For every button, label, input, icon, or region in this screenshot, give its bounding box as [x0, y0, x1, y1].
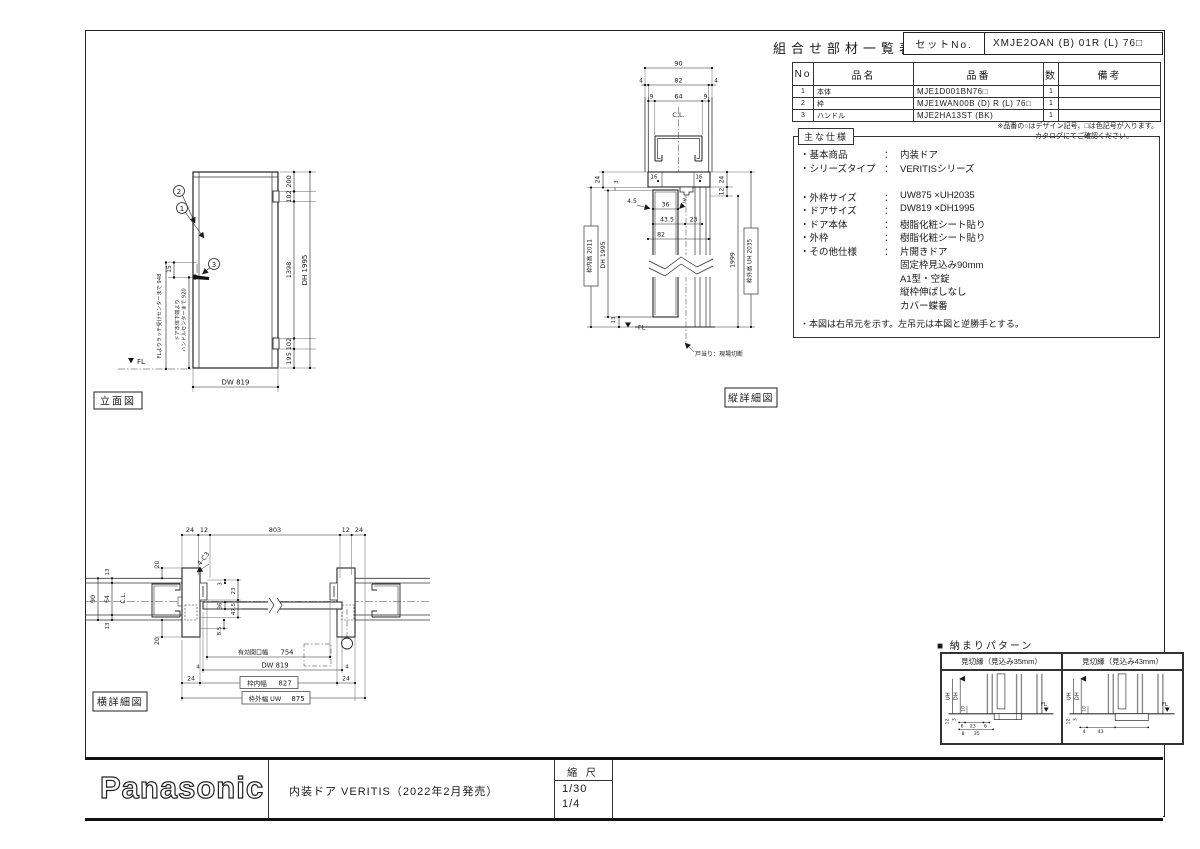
spec-sep: ： [884, 190, 900, 204]
spec-sep [884, 271, 900, 285]
fl-marker-icon [128, 358, 134, 363]
dh-label: DH [953, 692, 959, 700]
pattern-35-header: 見切縁（見込み35mm） [941, 653, 1062, 670]
dim-64: 64 [674, 93, 682, 101]
callout-1: 1 [180, 205, 184, 213]
dim-24-left: 24 [596, 176, 602, 184]
spec-sep: ： [884, 147, 900, 161]
left-stud-inner [154, 586, 178, 615]
specs-title: 主な仕様 [798, 128, 854, 145]
dim-6-right: 6 [984, 723, 987, 729]
panasonic-logo: Panasonic [100, 770, 264, 806]
spec-value: カバー蝶番 [900, 298, 948, 312]
spec-row: カバー蝶番 [800, 298, 948, 312]
row-qty: 1 [1044, 98, 1059, 110]
spec-value: 樹脂化粧シート貼り [900, 230, 986, 244]
caption-elevation: 立面図 [100, 395, 136, 408]
uh-label: UH [1066, 692, 1072, 700]
spec-value: 固定枠見込み90mm [900, 257, 983, 271]
spec-row: 縦枠伸ばしなし [800, 284, 967, 298]
spec-row: ・基本商品：内装ドア [800, 147, 938, 161]
centerline-label: C.L. [120, 592, 127, 603]
label-outer-height: 枠外高 UH 2035 [746, 238, 754, 283]
spec-label: ・その他仕様 [800, 244, 884, 258]
callout-3: 3 [212, 261, 216, 269]
dim-door-width: DW 819 [222, 379, 250, 387]
dim-3: 3 [951, 718, 957, 721]
handle-plan [342, 638, 353, 649]
parts-table-header: No 品名 品番 数 備考 [793, 63, 1161, 86]
dim-3-gap: 3 [682, 198, 686, 205]
view-caption: 横詳細図 [93, 692, 147, 711]
parts-note-line1: ※品番の○はデザイン記号、□は色記号が入ります。 [940, 122, 1158, 132]
spec-value: 縦枠伸ばしなし [900, 284, 967, 298]
spec-label [800, 298, 884, 312]
opening-width-value: 754 [281, 649, 294, 657]
spec-row: ・ドア本体：樹脂化粧シート貼り [800, 217, 986, 231]
pattern-43-cell: UH DH 10 FL 12 3 4 43 [1062, 670, 1183, 744]
inner-width-value: 827 [278, 680, 291, 688]
dim-3-left: 3 [614, 180, 620, 184]
label-inner-height: 枠内高 2011 [586, 239, 594, 273]
elevation-view: 2 1 3 200 102 1398 102 195 DH 1995 15 FL… [90, 160, 335, 418]
dim-23: 23 [690, 217, 698, 224]
trim-piece [994, 714, 1021, 720]
dim-12-right: 12 [342, 526, 350, 534]
inner-width-label: 枠内幅 [247, 679, 267, 688]
leader-4-5 [637, 205, 650, 209]
uh-label: UH [945, 692, 951, 700]
row-name: 本体 [814, 86, 914, 98]
dim-47-5: 47.5 [231, 602, 237, 615]
scale-value-1: 1/30 [562, 783, 587, 795]
horizontal-detail-view: 24 12 803 12 24 4-C3 90 64 13 13 C.L. 20… [85, 520, 430, 728]
row-no: 2 [793, 98, 814, 110]
trim-piece [1115, 714, 1148, 721]
frame-piece [1118, 674, 1126, 709]
dim-4-5: 4.5 [627, 198, 637, 205]
note-corner-chamfer: 4-C3 [196, 550, 212, 567]
dim-16-right: 16 [696, 175, 703, 181]
pattern-43-drawing: UH DH 10 FL 12 3 4 43 [1063, 671, 1182, 741]
spec-label: ・シリーズタイプ [800, 161, 884, 175]
wall-frame-lines [1108, 674, 1162, 714]
dim-20-bottom: 20 [154, 637, 161, 645]
col-remarks: 備考 [1059, 63, 1161, 86]
dim-8: 8 [962, 731, 965, 737]
dim-4-left: 4 [639, 78, 643, 85]
row-remarks [1059, 98, 1161, 110]
spec-value: VERITISシリーズ [900, 161, 974, 175]
spec-label [800, 271, 884, 285]
parts-table: No 品名 品番 数 備考 1 本体 MJE1D001BN76□ 1 2 枠 M… [792, 62, 1161, 122]
caption-vertical-detail: 縦詳細図 [728, 392, 774, 405]
right-door-stop [330, 583, 337, 600]
spec-label [800, 257, 884, 271]
dim-4: 4 [1083, 729, 1086, 735]
dim-12: 12 [720, 188, 726, 196]
set-no-label: セットNo. [904, 33, 985, 54]
spec-sep: ： [884, 244, 900, 258]
spec-row: A1型・空錠 [800, 271, 950, 285]
pattern-35-cell: UH DH 10 FL 12 3 6 23 6 8 35 [941, 670, 1062, 744]
right-stud [372, 584, 400, 617]
dim-4-right: 4 [714, 78, 718, 85]
dim-1999: 1999 [730, 252, 737, 268]
spec-label: ・外枠サイズ [800, 190, 884, 204]
fl-label: FL [1162, 702, 1168, 708]
title-block-divider [612, 760, 613, 818]
left-stud [152, 584, 180, 617]
drawing-sheet: 組合せ部材一覧表 セットNo. XMJE2OAN (B) 01R (L) 76□… [0, 0, 1200, 849]
note-latch-height: FLよりラッチ受けセンターまで 948 [155, 274, 163, 359]
dim-hinge-top: 102 [285, 190, 293, 202]
patterns-table: 見切縁（見込み35mm） 見切縁（見込み43mm） UH DH 10 [940, 652, 1184, 745]
note-handle-height-2: ハンドルセンターまで 920 [180, 288, 188, 351]
dim-12-left: 12 [200, 526, 208, 534]
product-title: 内装ドア VERITIS（2022年2月発売） [289, 783, 498, 799]
table-row: 2 枠 MJE1WAN00B (D) R (L) 76□ 1 [793, 98, 1161, 110]
dim-door-width: DW 819 [261, 662, 288, 670]
dim-82: 82 [674, 77, 682, 85]
dim-13-top: 13 [105, 568, 111, 575]
dim-door-height: DH 1995 [600, 241, 607, 268]
note-handle-height-1: ドア本体下端より [173, 299, 181, 340]
dim-35: 35 [974, 731, 980, 737]
row-no: 3 [793, 110, 814, 122]
opening-width-label: 有効開口幅 [238, 649, 268, 657]
spec-sep: ： [884, 217, 900, 231]
dim-3: 3 [1072, 718, 1078, 721]
row-remarks [1059, 86, 1161, 98]
leader-3 [680, 205, 684, 209]
spec-sep: ： [884, 161, 900, 175]
row-part: MJE1D001BN76□ [914, 86, 1044, 98]
spec-value: UW875 ×UH2035 [900, 190, 975, 204]
callout-2: 2 [177, 188, 181, 196]
dim-36: 36 [662, 202, 670, 209]
dim-12: 12 [1066, 719, 1072, 725]
dim-3: 3 [218, 582, 224, 586]
pattern-35-drawing: UH DH 10 FL 12 3 6 23 6 8 35 [942, 671, 1061, 741]
dim-24-right: 24 [720, 176, 726, 184]
set-no-value: XMJE2OAN (B) 01R (L) 76□ [985, 33, 1162, 54]
spec-value: 樹脂化粧シート貼り [900, 217, 986, 231]
dim-9-left: 9 [650, 94, 654, 101]
spec-label: ・外枠 [800, 230, 884, 244]
dim-82-depth: 82 [657, 232, 665, 239]
patterns-title: ■ 納まりパターン [937, 637, 1033, 652]
left-frame-post [182, 568, 200, 637]
dim-803: 803 [269, 526, 281, 534]
dim-4-left: 4 [196, 665, 200, 671]
table-row: 3 ハンドル MJE2HA13ST (BK) 1 [793, 110, 1161, 122]
col-part: 品番 [914, 63, 1044, 86]
dh-label: DH [1074, 692, 1080, 700]
row-part: MJE1WAN00B (D) R (L) 76□ [914, 98, 1044, 110]
dim-23: 23 [970, 723, 976, 729]
fl-marker-icon [1044, 707, 1049, 711]
dimension-lines [98, 535, 365, 698]
view-caption: 立面図 [94, 392, 142, 409]
spec-value: 片開きドア [900, 244, 948, 258]
left-door-stop [200, 583, 207, 600]
break-mask [647, 255, 715, 277]
dim-10: 10 [961, 706, 967, 712]
spec-value: A1型・空錠 [900, 271, 950, 285]
door-leaf [192, 172, 279, 368]
dim-13: 13 [611, 316, 617, 323]
spec-value: 内装ドア [900, 147, 938, 161]
dim-90: 90 [674, 60, 682, 68]
fl-marker-icon [1165, 707, 1170, 711]
fl-label: FL [1041, 702, 1047, 708]
row-name: 枠 [814, 98, 914, 110]
row-name: ハンドル [814, 110, 914, 122]
wall-lines [85, 578, 430, 620]
scale-label: 縮 尺 [554, 764, 612, 779]
outer-width-value: 875 [291, 695, 304, 703]
caption-horizontal-detail: 横詳細図 [97, 696, 143, 709]
spec-sep [884, 284, 900, 298]
dim-hinge-bot: 102 [285, 338, 293, 350]
row-remarks [1059, 110, 1161, 122]
dim-24-bottom-left: 24 [187, 676, 195, 683]
leader-door-stop [685, 343, 694, 352]
dim-hinge-top-offset: 200 [285, 175, 293, 187]
door-stop [680, 187, 693, 195]
handle-base [192, 274, 197, 279]
dim-hinge-mid: 1398 [285, 262, 293, 279]
table-row: 1 本体 MJE1D001BN76□ 1 [793, 86, 1161, 98]
spec-label: ・ドアサイズ [800, 203, 884, 217]
dim-24-right: 24 [355, 526, 363, 534]
parts-list-title: 組合せ部材一覧表 [773, 38, 917, 57]
dimension-dots [98, 535, 365, 698]
col-no: No [793, 63, 814, 86]
dim-24-bottom-right: 24 [342, 676, 350, 683]
title-block-divider [268, 760, 269, 818]
dim-dots [959, 723, 993, 730]
row-qty: 1 [1044, 86, 1059, 98]
dim-43: 43 [1098, 729, 1104, 735]
dim-43-5: 43.5 [660, 217, 674, 224]
spec-sep [884, 257, 900, 271]
dim-36: 36 [218, 602, 224, 609]
spec-label: ・ドア本体 [800, 217, 884, 231]
frame-piece [997, 674, 1005, 709]
dim-12: 12 [945, 719, 951, 725]
dim-13-bottom: 13 [105, 622, 111, 629]
wall-frame-lines [987, 674, 1041, 714]
scale-divider [554, 780, 612, 781]
row-no: 1 [793, 86, 814, 98]
right-stud-inner [374, 586, 398, 615]
spec-row: ・その他仕様：片開きドア [800, 244, 948, 258]
title-block: Panasonic 内装ドア VERITIS（2022年2月発売） 縮 尺 1/… [85, 757, 1163, 821]
spec-row: 固定枠見込み90mm [800, 257, 983, 271]
scale-value-2: 1/4 [562, 798, 580, 810]
spec-sep: ： [884, 203, 900, 217]
spec-label [800, 284, 884, 298]
spec-value: DW819 ×DH1995 [900, 203, 975, 217]
spec-row: ・外枠：樹脂化粧シート貼り [800, 230, 986, 244]
dim-4-right: 4 [345, 665, 349, 671]
fl-label: FL [638, 324, 646, 332]
dim-bottom-offset: 195 [285, 352, 293, 364]
spec-row: ・シリーズタイプ：VERITISシリーズ [800, 161, 974, 175]
row-qty: 1 [1044, 110, 1059, 122]
col-qty: 数 [1044, 63, 1059, 86]
fl-label: FL [137, 358, 145, 366]
spec-sep [884, 298, 900, 312]
view-caption: 縦詳細図 [725, 388, 777, 407]
dim-20-top: 20 [154, 561, 161, 569]
row-part: MJE2HA13ST (BK) [914, 110, 1044, 122]
centerline-label: C.L. [672, 111, 684, 119]
vertical-detail-view: FL 90 4 82 4 9 64 9 C.L. 16 16 24 3 枠内高 … [575, 55, 780, 415]
dim-8-5: 8.5 [217, 626, 223, 635]
hinge-bottom [273, 338, 279, 349]
hinge-top [273, 191, 279, 202]
note-door-stop: 戸当り：現場切断 [695, 350, 743, 358]
dim-64: 64 [104, 595, 111, 603]
dim-90: 90 [89, 595, 97, 603]
dim-16-left: 16 [651, 175, 658, 181]
spec-row: ・ドアサイズ：DW819 ×DH1995 [800, 203, 975, 217]
door-outline [193, 172, 278, 368]
spec-label: ・基本商品 [800, 147, 884, 161]
spec-sep: ： [884, 230, 900, 244]
spec-row: ・外枠サイズ：UW875 ×UH2035 [800, 190, 975, 204]
dim-6-left: 6 [961, 723, 964, 729]
outer-width-label: 枠外幅 UW [249, 694, 282, 703]
dim-latch-offset: 15 [166, 265, 173, 273]
extension-lines [87, 535, 365, 701]
dim-24-left: 24 [186, 526, 194, 534]
dim-9-right: 9 [704, 94, 708, 101]
pattern-43-header: 見切縁（見込み43mm） [1062, 653, 1183, 670]
dim-10: 10 [1082, 706, 1088, 712]
col-name: 品名 [814, 63, 914, 86]
hinge-side-note: ・本図は右吊元を示す。左吊元は本図と逆勝手とする。 [800, 317, 1024, 330]
dim-door-height: DH 1995 [301, 255, 309, 286]
handle-clearance-dashed [304, 644, 331, 666]
dim-23: 23 [231, 587, 237, 594]
set-no-box: セットNo. XMJE2OAN (B) 01R (L) 76□ [903, 32, 1163, 55]
